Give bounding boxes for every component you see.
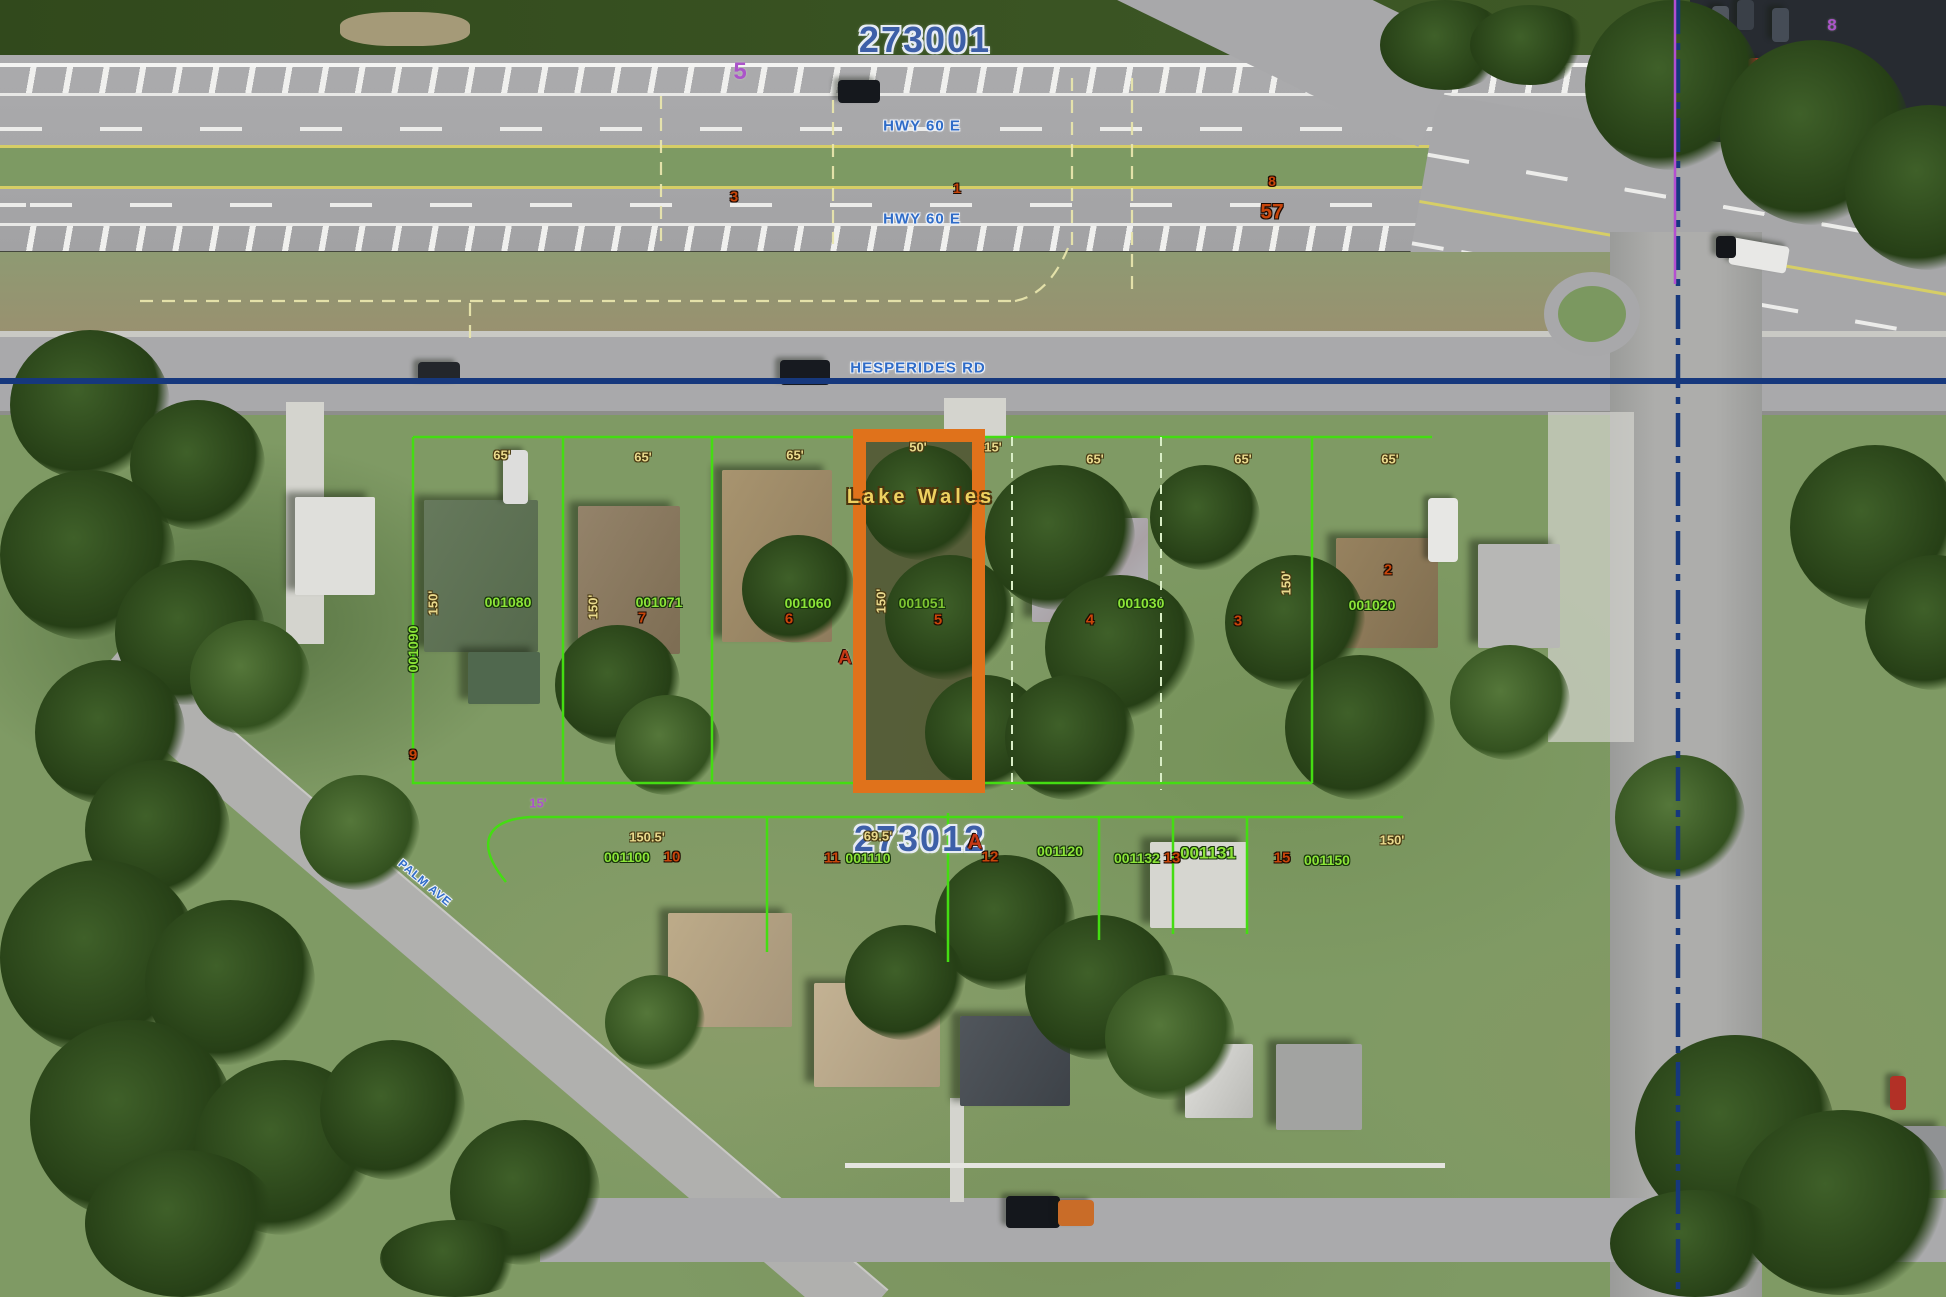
parcel-id-001132: 001132: [1114, 851, 1160, 865]
dim-side-gap: 15': [984, 441, 1002, 454]
lot-number-4: 4: [1086, 613, 1094, 628]
dim-frontage-south: 69.5': [864, 830, 892, 843]
dim-frontage-highlight: 50': [909, 441, 927, 454]
road-label-hwy60-lower: HWY 60 E: [883, 212, 961, 227]
dim-frontage: 65': [1086, 453, 1104, 466]
marker-orange-3: 3: [730, 190, 738, 205]
lot-number-5: 5: [934, 613, 942, 628]
lot-number-3: 3: [1234, 614, 1242, 629]
road-label-hwy60-upper: HWY 60 E: [883, 119, 961, 134]
parcel-id-001150: 001150: [1304, 853, 1350, 867]
lot-number-2: 2: [1384, 563, 1392, 578]
parcel-id-001071: 001071: [636, 595, 683, 609]
marker-orange-57: 57: [1260, 202, 1283, 223]
city-label: Lake Wales: [847, 487, 995, 507]
lot-number-6: 6: [785, 612, 793, 627]
dim-frontage: 65': [1381, 453, 1399, 466]
marker-purple-5: 5: [733, 60, 746, 84]
road-label-hesperides: HESPERIDES RD: [850, 361, 986, 376]
dim-frontage-south: 150.5': [629, 831, 665, 844]
section-number-north: 273001: [859, 22, 991, 58]
dim-frontage: 65': [786, 449, 804, 462]
lot-number-12: 12: [982, 850, 999, 865]
dim-frontage-south: 150': [1380, 834, 1405, 847]
parcel-id-001100: 001100: [604, 850, 650, 864]
parcel-id-001051: 001051: [899, 596, 946, 610]
dim-frontage: 65': [1234, 453, 1252, 466]
parcel-id-001080: 001080: [485, 595, 532, 609]
parcel-id-001020: 001020: [1349, 598, 1396, 612]
section-dashed-lines: [140, 78, 1132, 345]
lot-number-7: 7: [638, 611, 646, 626]
lot-number-13: 13: [1164, 851, 1181, 866]
annotation-a-south: A: [967, 832, 982, 853]
parcel-id-001090: 001090: [406, 626, 420, 673]
dim-depth: 150': [587, 595, 600, 620]
parcel-id-001110: 001110: [845, 851, 890, 865]
marker-orange-8: 8: [1268, 174, 1276, 188]
dim-frontage: 65': [493, 449, 511, 462]
lot-number-9: 9: [409, 748, 417, 763]
parcel-id-001030: 001030: [1118, 596, 1165, 610]
dim-depth-highlight: 150': [875, 589, 888, 614]
dim-frontage: 65': [634, 451, 652, 464]
marker-orange-1: 1: [953, 181, 961, 195]
lot-number-10: 10: [664, 850, 681, 865]
parcel-id-001120: 001120: [1037, 844, 1083, 858]
marker-purple-8: 8: [1827, 17, 1836, 34]
annotation-a-north: A: [838, 649, 852, 668]
dim-depth: 150': [1280, 571, 1293, 596]
parcel-id-001060: 001060: [785, 596, 832, 610]
parcel-id-001131: 001131: [1180, 845, 1236, 862]
dim-depth: 150': [427, 591, 440, 616]
gis-aerial-map[interactable]: 273001 273012 HWY 60 E HWY 60 E HESPERID…: [0, 0, 1946, 1297]
marker-purple-15ft: 15': [529, 797, 547, 810]
lot-number-15: 15: [1274, 851, 1291, 866]
lot-number-11: 11: [824, 851, 840, 866]
